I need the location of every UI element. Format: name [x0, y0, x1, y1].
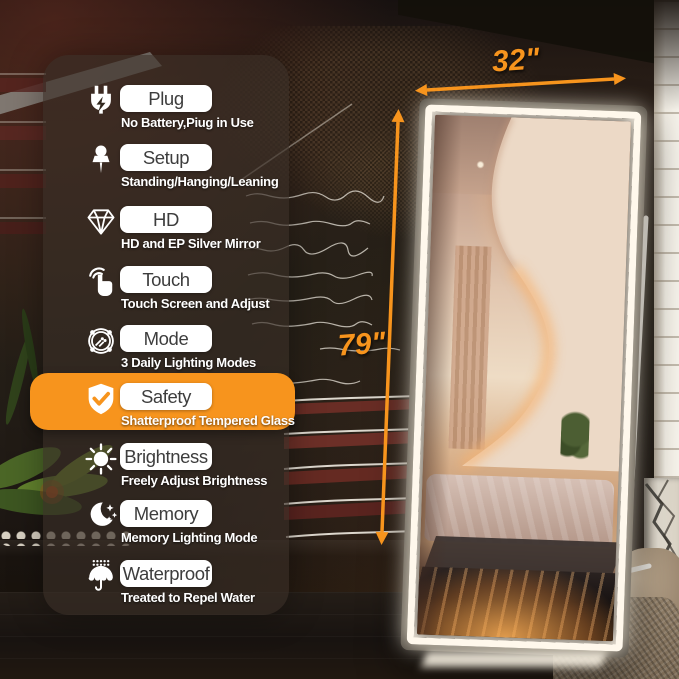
shield-icon	[81, 379, 121, 419]
feature-subtitle: No Battery,Piug in Use	[121, 115, 296, 130]
feature-title-pill: Plug	[120, 85, 212, 112]
height-label: 79"	[337, 326, 387, 363]
sun-icon	[81, 439, 121, 479]
feature-subtitle: Standing/Hanging/Leaning	[121, 174, 296, 189]
feature-title-pill: Setup	[120, 144, 212, 171]
width-label: 32"	[491, 42, 541, 79]
mirror	[400, 98, 647, 658]
led-floor-reflection	[422, 652, 607, 667]
feature-row-waterproof: Waterproof Treated to Repel Water	[43, 560, 293, 610]
feature-row-setup: Setup Standing/Hanging/Leaning	[43, 144, 293, 194]
feature-title-pill: Memory	[120, 500, 212, 527]
feature-row-brightness: Brightness Freely Adjust Brightness	[43, 443, 293, 493]
feature-title: Safety	[141, 386, 191, 408]
plug-icon	[81, 81, 121, 121]
feature-row-hd: HD HD and EP Silver Mirror	[43, 206, 293, 256]
feature-title-pill: Brightness	[120, 443, 212, 470]
feature-title-pill: Waterproof	[120, 560, 212, 587]
feature-title: Waterproof	[123, 563, 210, 585]
feature-row-memory: Memory Memory Lighting Mode	[43, 500, 293, 550]
feature-subtitle: Memory Lighting Mode	[121, 530, 296, 545]
feature-row-mode: Mode 3 Daily Lighting Modes	[43, 325, 293, 375]
touch-icon	[81, 262, 121, 302]
feature-subtitle: Touch Screen and Adjust	[121, 296, 296, 311]
product-infographic: Plug No Battery,Piug in Use Setup Standi…	[0, 0, 679, 679]
pushpin-icon	[81, 140, 121, 180]
feature-subtitle: HD and EP Silver Mirror	[121, 236, 296, 251]
feature-title: Plug	[148, 88, 183, 110]
feature-subtitle: Freely Adjust Brightness	[121, 473, 296, 488]
feature-subtitle: Shatterproof Tempered Glass	[121, 413, 296, 428]
diamond-icon	[81, 202, 121, 242]
feature-title-pill: Safety	[120, 383, 212, 410]
feature-subtitle: Treated to Repel Water	[121, 590, 296, 605]
feature-title: Setup	[143, 147, 189, 169]
reflection-floor-glow	[417, 567, 615, 641]
feature-row-touch: Touch Touch Screen and Adjust	[43, 266, 293, 316]
feature-title-pill: HD	[120, 206, 212, 233]
reflection-plant	[560, 405, 590, 474]
umbrella-icon	[81, 556, 121, 596]
feature-title: Touch	[142, 269, 189, 291]
mode-icon	[81, 321, 121, 361]
feature-title: Brightness	[124, 446, 207, 468]
feature-title: HD	[153, 209, 179, 231]
feature-title: Mode	[144, 328, 189, 350]
feature-row-plug: Plug No Battery,Piug in Use	[43, 85, 293, 135]
feature-row-safety: Safety Shatterproof Tempered Glass	[43, 383, 293, 433]
feature-title-pill: Touch	[120, 266, 212, 293]
feature-subtitle: 3 Daily Lighting Modes	[121, 355, 296, 370]
mirror-reflection	[417, 115, 631, 642]
moon-icon	[81, 496, 121, 536]
feature-title-pill: Mode	[120, 325, 212, 352]
feature-title: Memory	[134, 503, 198, 525]
